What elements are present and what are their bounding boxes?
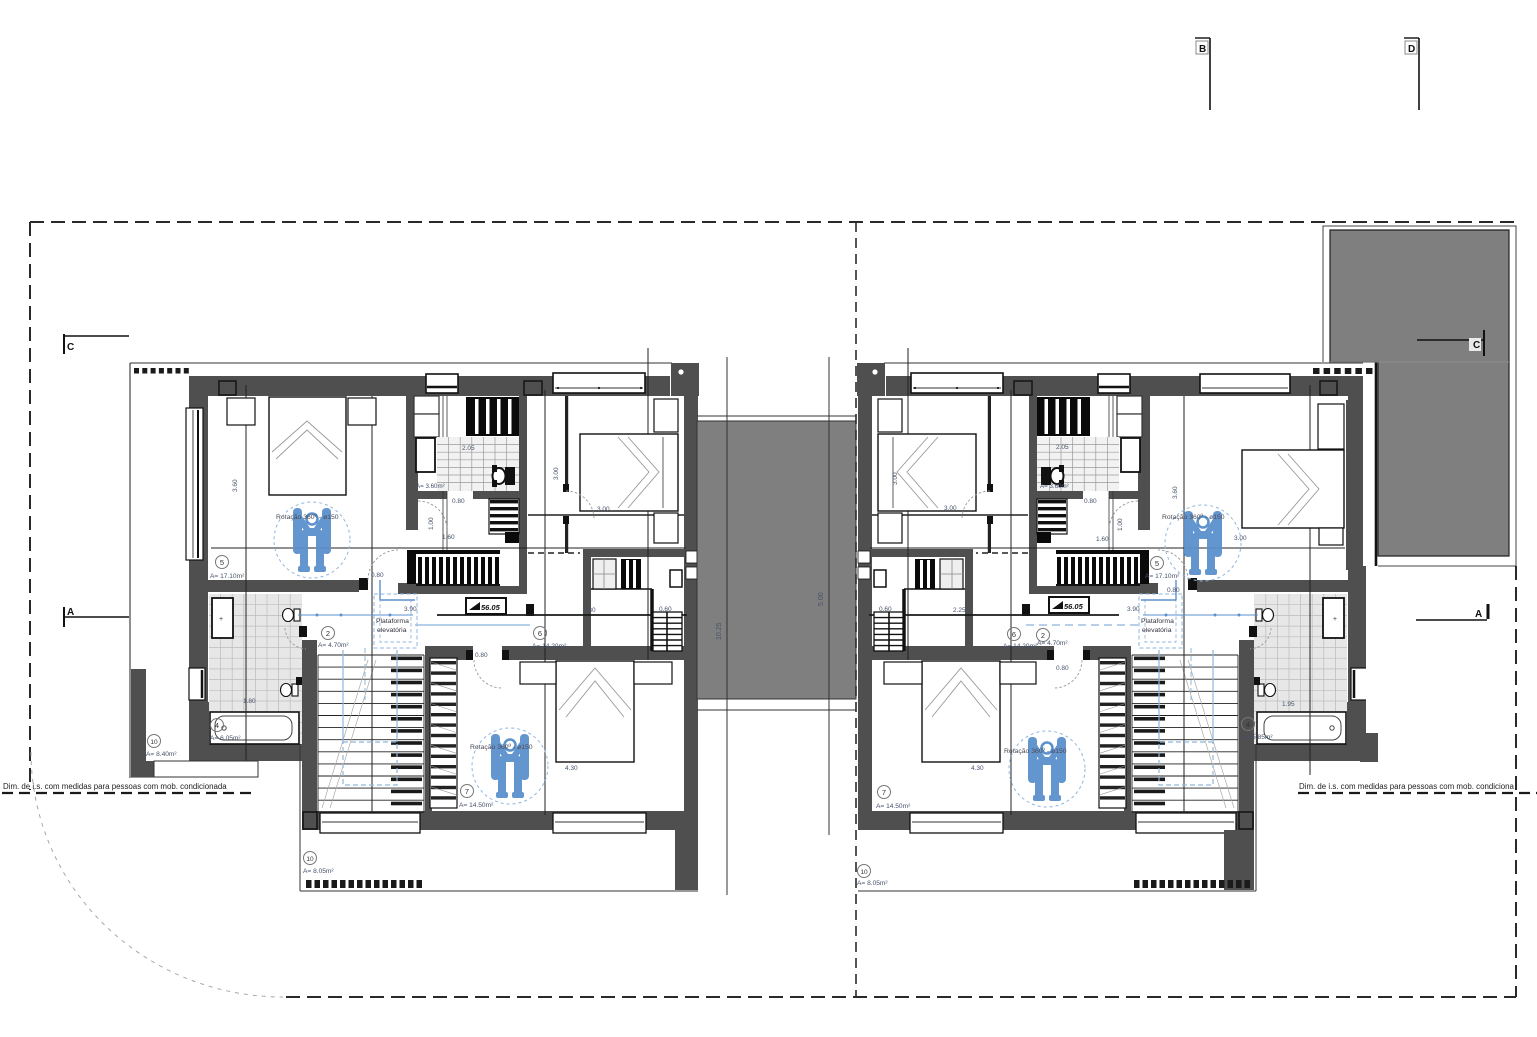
svg-text:3.60: 3.60 bbox=[232, 479, 239, 492]
svg-text:0.80: 0.80 bbox=[1056, 665, 1069, 672]
svg-text:2.05: 2.05 bbox=[1056, 444, 1069, 451]
svg-text:4.30: 4.30 bbox=[565, 765, 578, 772]
svg-text:1.00: 1.00 bbox=[1117, 518, 1124, 531]
svg-text:+: + bbox=[219, 616, 223, 623]
svg-text:7: 7 bbox=[465, 787, 469, 796]
svg-text:Plataforma: Plataforma bbox=[376, 618, 409, 625]
svg-text:2.25: 2.25 bbox=[953, 607, 966, 614]
svg-text:A= 4.70m²: A= 4.70m² bbox=[318, 642, 349, 649]
svg-text:D: D bbox=[1408, 44, 1415, 55]
svg-text:3.00: 3.00 bbox=[892, 472, 899, 485]
svg-text:56.05: 56.05 bbox=[481, 603, 501, 612]
svg-text:A= 14.50m²: A= 14.50m² bbox=[459, 802, 494, 809]
svg-text:3.90: 3.90 bbox=[404, 606, 417, 613]
svg-text:0.80: 0.80 bbox=[1167, 587, 1180, 594]
svg-text:4: 4 bbox=[215, 721, 219, 730]
svg-text:A= 8.40m²: A= 8.40m² bbox=[146, 751, 177, 758]
svg-text:Rotação 360º - ø150: Rotação 360º - ø150 bbox=[276, 514, 339, 521]
svg-text:A= 8.05m²: A= 8.05m² bbox=[303, 868, 334, 875]
svg-text:A= 14.20m²: A= 14.20m² bbox=[1003, 643, 1038, 650]
svg-text:A: A bbox=[1475, 609, 1482, 620]
svg-text:4: 4 bbox=[1246, 720, 1250, 729]
svg-text:7: 7 bbox=[882, 788, 886, 797]
svg-text:10: 10 bbox=[150, 739, 158, 746]
svg-text:3.00: 3.00 bbox=[553, 467, 560, 480]
svg-text:A= 6.05m²: A= 6.05m² bbox=[210, 735, 241, 742]
svg-text:A: A bbox=[67, 607, 74, 618]
svg-text:56.05: 56.05 bbox=[1064, 602, 1084, 611]
svg-text:5: 5 bbox=[1155, 559, 1159, 568]
svg-text:0.60: 0.60 bbox=[659, 606, 672, 613]
svg-text:2: 2 bbox=[326, 629, 330, 638]
svg-text:A= 8.05m²: A= 8.05m² bbox=[857, 880, 888, 887]
svg-text:A= 14.20m²: A= 14.20m² bbox=[532, 643, 567, 650]
svg-text:1.60: 1.60 bbox=[1096, 536, 1109, 543]
svg-text:5.00: 5.00 bbox=[818, 592, 825, 606]
svg-text:B: B bbox=[1199, 44, 1206, 55]
svg-text:5: 5 bbox=[220, 558, 224, 567]
svg-text:0.60: 0.60 bbox=[879, 606, 892, 613]
svg-text:elevatória: elevatória bbox=[1142, 627, 1172, 634]
svg-text:0.80: 0.80 bbox=[1084, 498, 1097, 505]
svg-text:A= 3.60m²: A= 3.60m² bbox=[1040, 483, 1069, 490]
svg-text:3.00: 3.00 bbox=[1234, 535, 1247, 542]
svg-text:2.05: 2.05 bbox=[462, 445, 475, 452]
svg-text:10: 10 bbox=[306, 856, 314, 863]
svg-text:1.00: 1.00 bbox=[428, 517, 435, 530]
svg-text:Rotação 360º - ø150: Rotação 360º - ø150 bbox=[1162, 514, 1225, 521]
svg-text:0.80: 0.80 bbox=[452, 498, 465, 505]
svg-text:A= 14.50m²: A= 14.50m² bbox=[876, 803, 911, 810]
svg-text:3.90: 3.90 bbox=[1127, 606, 1140, 613]
svg-text:elevatória: elevatória bbox=[377, 627, 407, 634]
svg-text:A= 17.10m²: A= 17.10m² bbox=[1145, 573, 1180, 580]
svg-text:10.25: 10.25 bbox=[716, 622, 723, 640]
svg-text:Dim. de i.s. com medidas para: Dim. de i.s. com medidas para pessoas co… bbox=[3, 782, 227, 791]
svg-text:C: C bbox=[67, 342, 74, 353]
svg-text:1.60: 1.60 bbox=[442, 534, 455, 541]
svg-text:0.80: 0.80 bbox=[371, 572, 384, 579]
svg-text:6: 6 bbox=[538, 629, 542, 638]
svg-text:1.95: 1.95 bbox=[1282, 701, 1295, 708]
svg-text:Plataforma: Plataforma bbox=[1141, 618, 1174, 625]
svg-text:2.30: 2.30 bbox=[583, 607, 596, 614]
svg-text:A= 5.85m²: A= 5.85m² bbox=[1242, 734, 1273, 741]
svg-text:2: 2 bbox=[1041, 631, 1045, 640]
svg-text:6: 6 bbox=[1012, 630, 1016, 639]
svg-text:A= 17.10m²: A= 17.10m² bbox=[210, 573, 245, 580]
svg-text:3.00: 3.00 bbox=[944, 505, 957, 512]
svg-text:10: 10 bbox=[860, 869, 868, 876]
svg-text:C: C bbox=[1473, 340, 1480, 351]
svg-text:Rotação 360º - ø150: Rotação 360º - ø150 bbox=[470, 744, 533, 751]
svg-text:0.80: 0.80 bbox=[475, 652, 488, 659]
svg-text:A= 4.70m²: A= 4.70m² bbox=[1037, 640, 1068, 647]
svg-text:1.80: 1.80 bbox=[243, 698, 256, 705]
svg-text:3.00: 3.00 bbox=[597, 506, 610, 513]
svg-text:4.30: 4.30 bbox=[971, 765, 984, 772]
svg-text:Rotação 360º - ø150: Rotação 360º - ø150 bbox=[1004, 748, 1067, 755]
svg-text:Dim. de i.s. com medidas para: Dim. de i.s. com medidas para pessoas co… bbox=[1299, 782, 1515, 791]
svg-text:3.60: 3.60 bbox=[1172, 486, 1179, 499]
svg-text:A= 3.60m²: A= 3.60m² bbox=[416, 483, 445, 490]
